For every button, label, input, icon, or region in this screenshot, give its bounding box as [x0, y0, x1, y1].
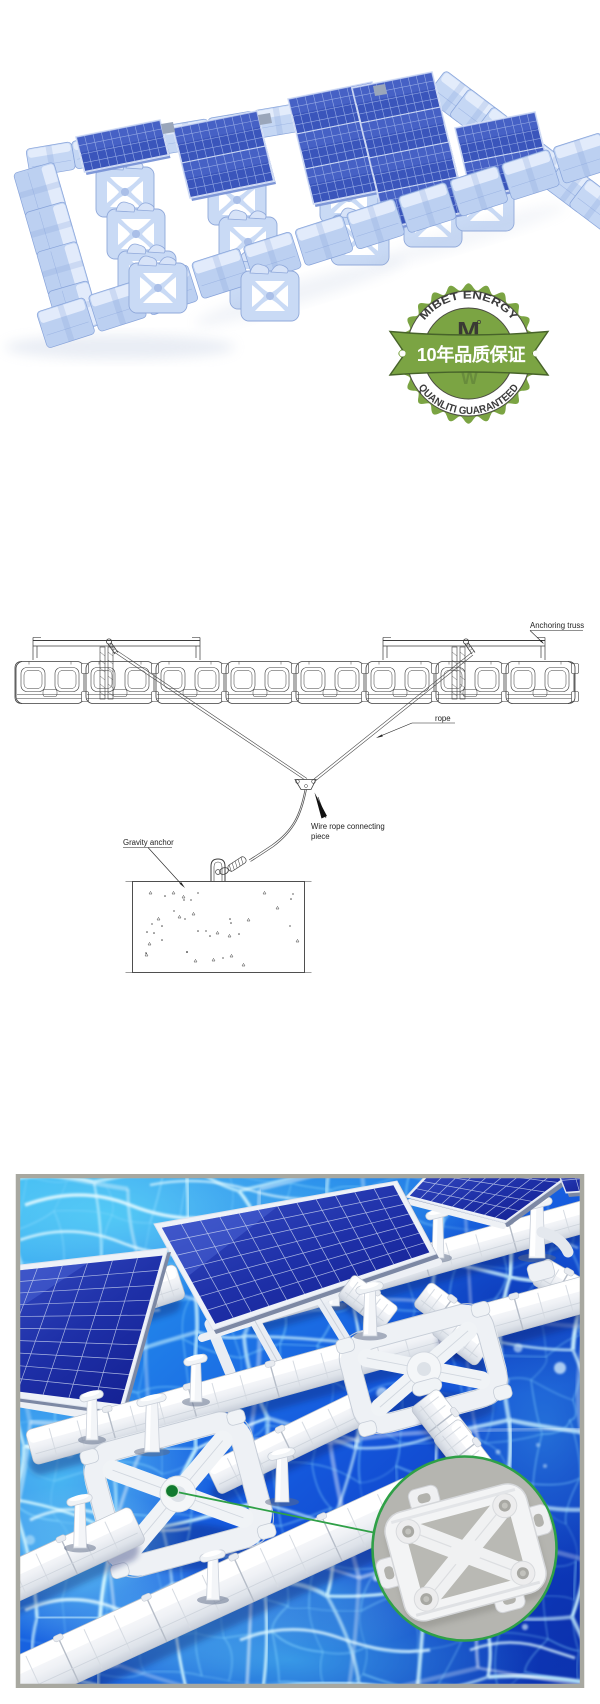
svg-text:Anchoring truss: Anchoring truss: [530, 621, 584, 630]
svg-text:10年品质保证: 10年品质保证: [417, 344, 526, 365]
svg-text:rope: rope: [435, 714, 451, 723]
svg-text:Gravity anchor: Gravity anchor: [123, 838, 174, 847]
svg-text:Wire rope connecting: Wire rope connecting: [311, 822, 385, 831]
svg-text:piece: piece: [311, 832, 330, 841]
